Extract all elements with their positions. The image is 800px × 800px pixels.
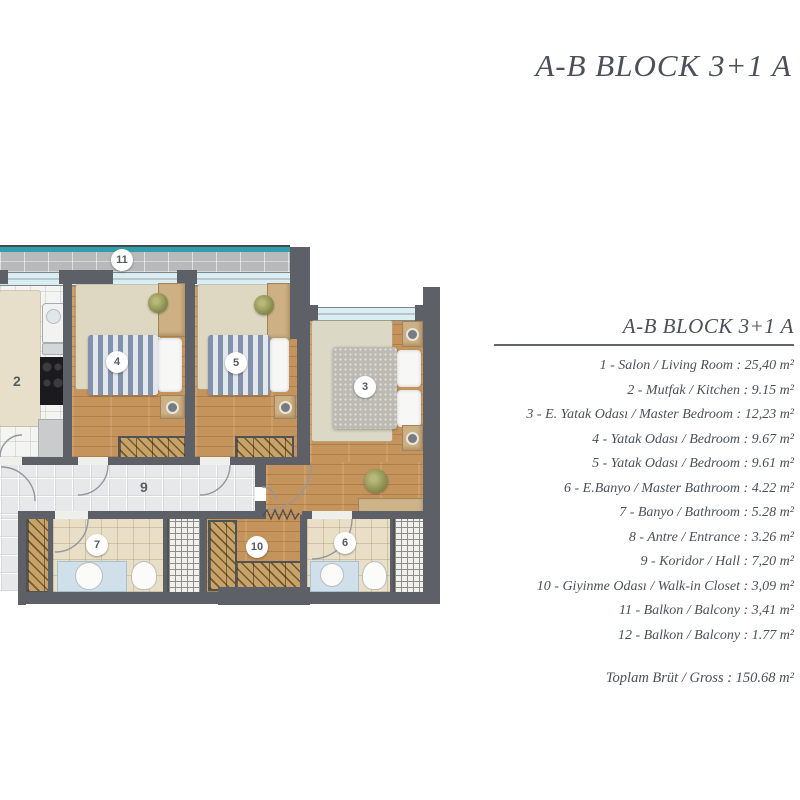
legend-item: 12 - Balkon / Balcony : 1.77 m²: [494, 624, 794, 649]
room-badge-master-bedroom: 3: [354, 376, 376, 398]
legend-item: 11 - Balkon / Balcony : 3,41 m²: [494, 599, 794, 624]
legend-item: 10 - Giyinme Odası / Walk-in Closet : 3,…: [494, 575, 794, 600]
room-badge-bathroom: 7: [86, 534, 108, 556]
legend-title: A-B BLOCK 3+1 A: [494, 314, 794, 339]
legend: A-B BLOCK 3+1 A 1 - Salon / Living Room …: [494, 314, 794, 687]
page-title: A-B BLOCK 3+1 A: [352, 48, 792, 84]
legend-item: 9 - Koridor / Hall : 7,20 m²: [494, 550, 794, 575]
legend-item: 6 - E.Banyo / Master Bathroom : 4.22 m²: [494, 477, 794, 502]
legend-item: 4 - Yatak Odası / Bedroom : 9.67 m²: [494, 428, 794, 453]
room-badge-bedroom4: 4: [106, 351, 128, 373]
room-badge-walkin-closet: 10: [246, 536, 268, 558]
legend-item: 5 - Yatak Odası / Bedroom : 9.61 m²: [494, 452, 794, 477]
room-badge-master-bathroom: 6: [334, 532, 356, 554]
legend-item: 7 - Banyo / Bathroom : 5.28 m²: [494, 501, 794, 526]
room-label-kitchen: 2: [13, 373, 21, 389]
floor-plan: 11 2 4 5 3 9 7 10 6: [0, 243, 443, 605]
legend-total: Toplam Brüt / Gross : 150.68 m²: [494, 670, 794, 687]
room-badge-balcony: 11: [111, 249, 133, 271]
legend-item: 2 - Mutfak / Kitchen : 9.15 m²: [494, 379, 794, 404]
door-arcs: [0, 243, 443, 605]
legend-item: 3 - E. Yatak Odası / Master Bedroom : 12…: [494, 403, 794, 428]
legend-item: 8 - Antre / Entrance : 3.26 m²: [494, 526, 794, 551]
room-badge-bedroom5: 5: [225, 352, 247, 374]
brochure-page: A-B BLOCK 3+1 A: [0, 0, 800, 800]
legend-item: 1 - Salon / Living Room : 25,40 m²: [494, 354, 794, 379]
room-label-hall: 9: [140, 479, 148, 495]
legend-divider: [494, 344, 794, 346]
